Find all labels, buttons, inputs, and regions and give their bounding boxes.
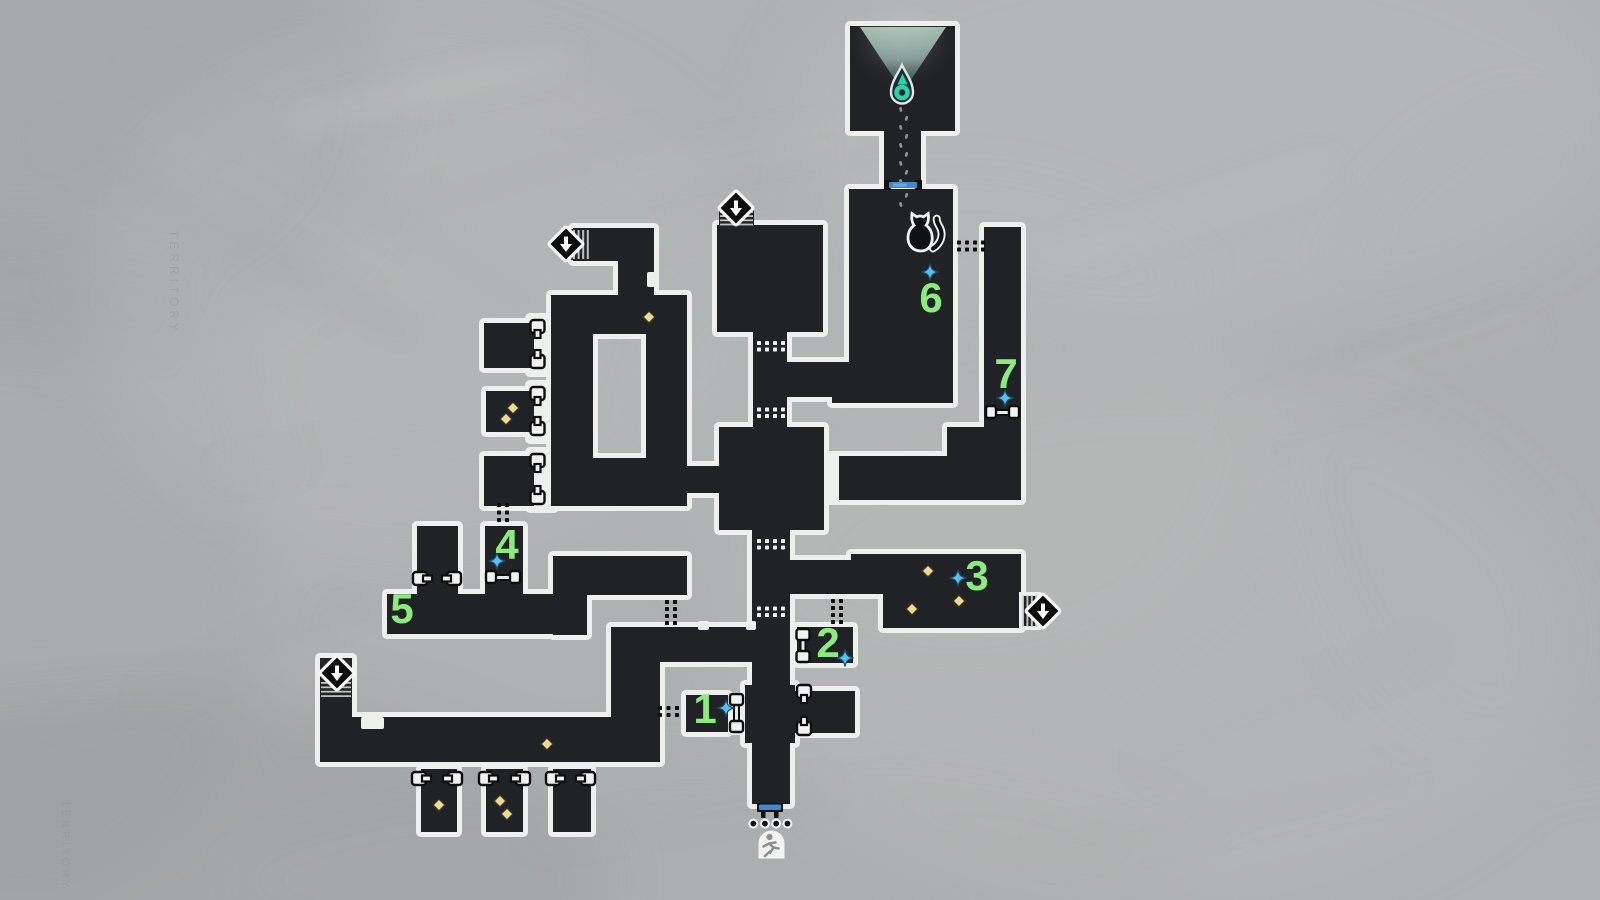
svg-text:3: 3 (965, 552, 988, 599)
svg-text:1: 1 (693, 685, 716, 732)
svg-text:5: 5 (390, 585, 413, 632)
svg-text:7: 7 (994, 350, 1017, 397)
svg-text:TERRITORY: TERRITORY (167, 230, 181, 335)
svg-text:TERRITORY: TERRITORY (59, 800, 71, 890)
svg-text:6: 6 (919, 274, 942, 321)
svg-text:2: 2 (816, 619, 839, 666)
svg-text:4: 4 (495, 521, 519, 568)
